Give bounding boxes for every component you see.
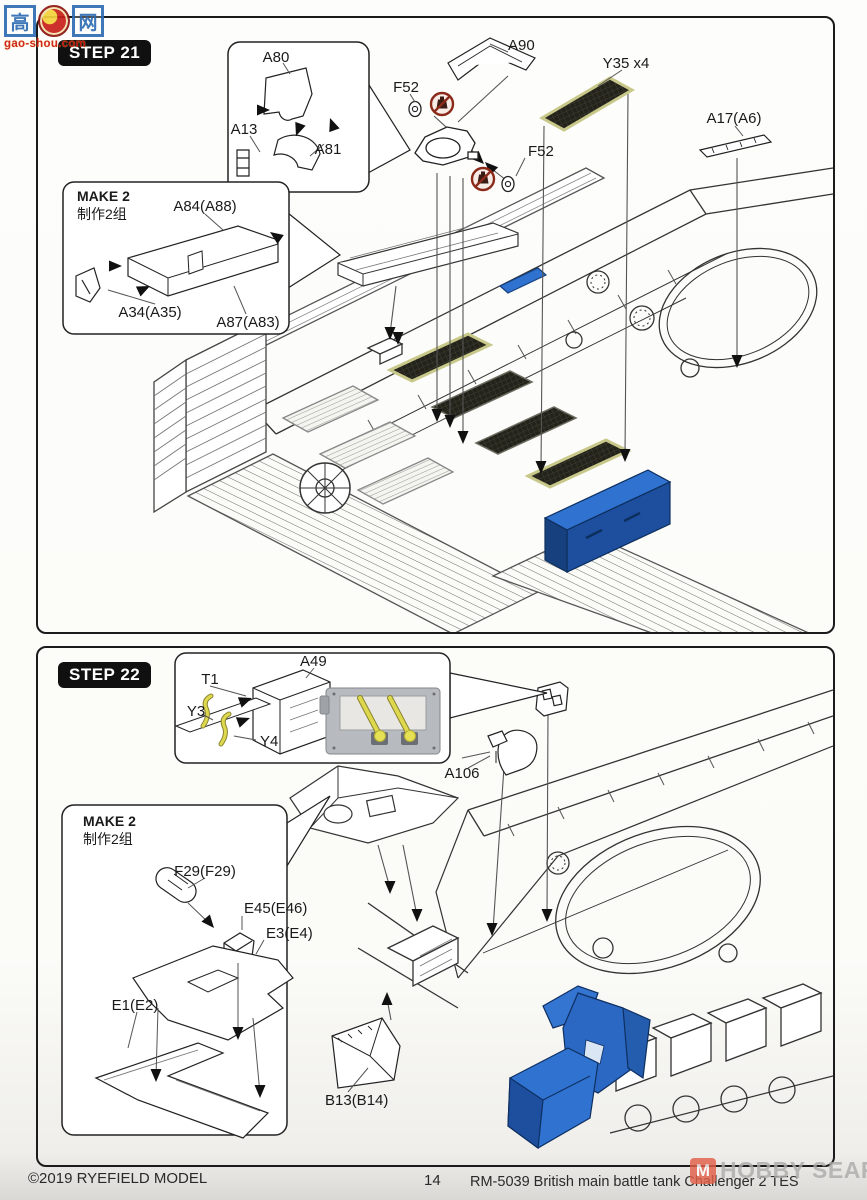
label-a17: A17(A6)	[706, 110, 761, 127]
label-e1: E1(E2)	[112, 997, 159, 1014]
label-a80: A80	[263, 49, 290, 66]
gaoshou-glyph-left: 高	[4, 5, 36, 37]
step21-detail-box: A80 A13 A81	[228, 42, 369, 192]
step21-part-y35-mesh	[542, 78, 632, 130]
label-t1: T1	[201, 671, 219, 688]
step22-part-a106	[488, 730, 537, 775]
make2-note-cn: 制作2组	[83, 831, 133, 847]
label-y3: Y3	[187, 703, 205, 720]
no-glue-icon	[472, 168, 494, 190]
step21-blue-strip	[500, 268, 546, 293]
step21-beam-assembly	[338, 223, 518, 286]
label-y4: Y4	[260, 733, 278, 750]
a49-color-inset	[320, 688, 440, 754]
step22-diagram: A49 T1 Y3 Y4 MAKE 2 制作2组	[38, 648, 833, 1165]
step21-detail-callout-tail	[368, 85, 410, 173]
hobbysearch-text: HOBBY SEARCH	[720, 1157, 867, 1184]
step21-f52-nut-top	[409, 102, 421, 117]
label-a13: A13	[231, 121, 258, 138]
label-a34: A34(A35)	[118, 304, 181, 321]
label-f29: F29(F29)	[174, 863, 236, 880]
label-b13: B13(B14)	[325, 1092, 388, 1109]
label-a81: A81	[315, 141, 342, 158]
label-e45: E45(E46)	[244, 900, 307, 917]
step22-part-b13	[332, 1018, 400, 1088]
label-a49: A49	[300, 653, 327, 670]
gaoshou-glyph-right: 网	[72, 5, 104, 37]
step22-part-a49-target	[536, 682, 568, 716]
label-a106: A106	[444, 765, 479, 782]
label-y35: Y35 x4	[603, 55, 650, 72]
footer-copyright: ©2019 RYEFIELD MODEL	[28, 1170, 207, 1187]
step21-arrowheads	[385, 151, 743, 474]
label-f52a: F52	[393, 79, 419, 96]
step21-diagram: A80 A13 A81 MAKE 2 制作2组 A84(A88) A34(A35…	[38, 18, 833, 632]
label-a87: A87(A83)	[216, 314, 279, 331]
gaoshou-watermark: 高 网 gao-shou.com	[4, 5, 104, 50]
label-a84: A84(A88)	[173, 198, 236, 215]
step21-part-a17	[700, 135, 771, 157]
step22-make2-box: MAKE 2 制作2组 F29(F29) E45(E46) E3(E4) E1(…	[62, 805, 313, 1138]
step21-make2-box: MAKE 2 制作2组 A84(A88) A34(A35) A87(A83)	[63, 182, 289, 334]
make2-note-en: MAKE 2	[83, 813, 136, 829]
step21-make2-callout-tail	[288, 213, 340, 288]
label-f52b: F52	[528, 143, 554, 160]
step22-detail-callout-tail	[450, 673, 547, 718]
gaoshou-thumb-icon	[38, 5, 70, 37]
make2-note-en: MAKE 2	[77, 188, 130, 204]
footer-page-number: 14	[424, 1172, 441, 1189]
label-e3: E3(E4)	[266, 925, 313, 942]
no-glue-icon	[431, 93, 453, 115]
step21-f52-nut-right	[502, 177, 514, 192]
step22-detail-box: A49 T1 Y3 Y4	[175, 653, 450, 763]
gaoshou-url: gao-shou.com	[4, 38, 104, 50]
step22-blue-assembly	[508, 986, 650, 1148]
step22-badge: STEP 22	[58, 662, 151, 688]
make2-note-cn: 制作2组	[77, 206, 127, 222]
step22-exhaust-assembly	[290, 766, 458, 843]
hobbysearch-logo-icon: M	[690, 1158, 716, 1184]
hobbysearch-watermark: M HOBBY SEARCH	[690, 1157, 867, 1184]
part-a13	[237, 150, 249, 176]
step21-f52-assembly	[415, 127, 478, 165]
label-a90: A90	[508, 37, 535, 54]
instruction-page: 高 网 gao-shou.com STEP 21	[0, 0, 867, 1200]
